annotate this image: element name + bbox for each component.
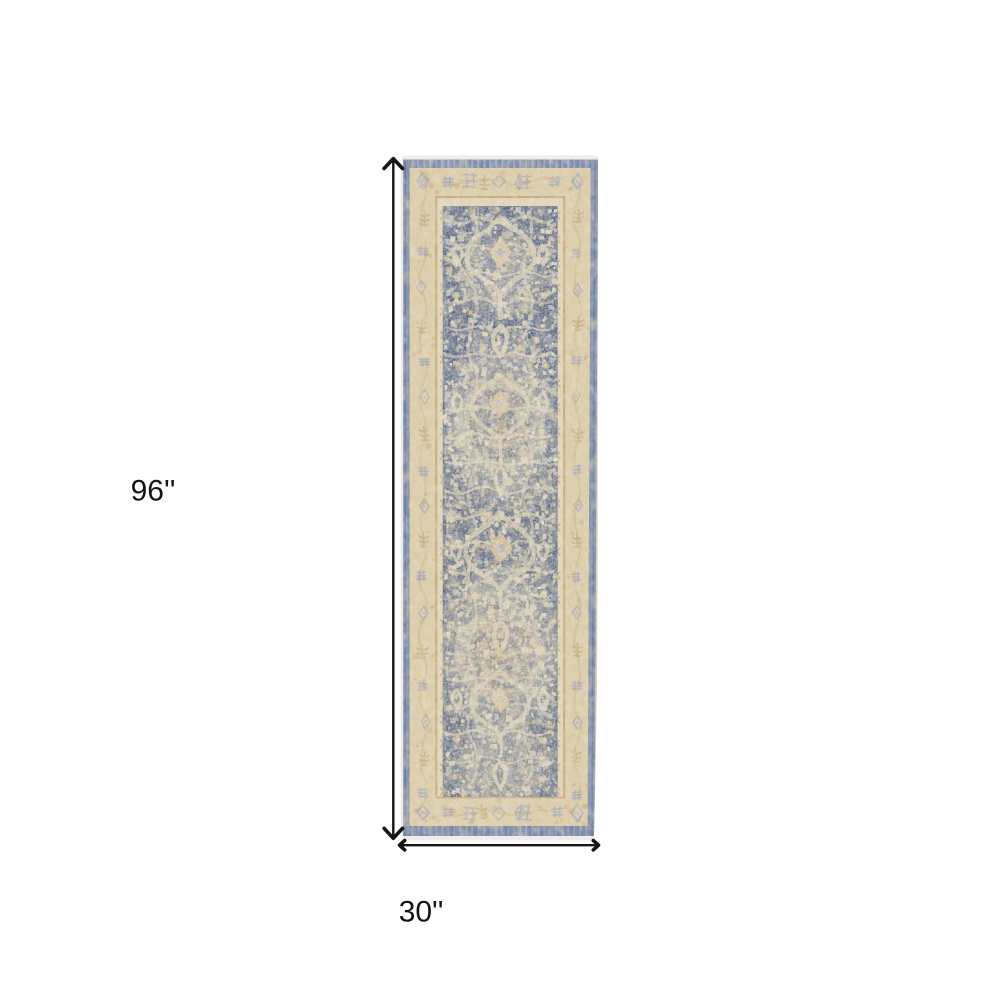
svg-text:30'': 30'' (399, 896, 444, 929)
svg-text:96'': 96'' (131, 474, 176, 507)
